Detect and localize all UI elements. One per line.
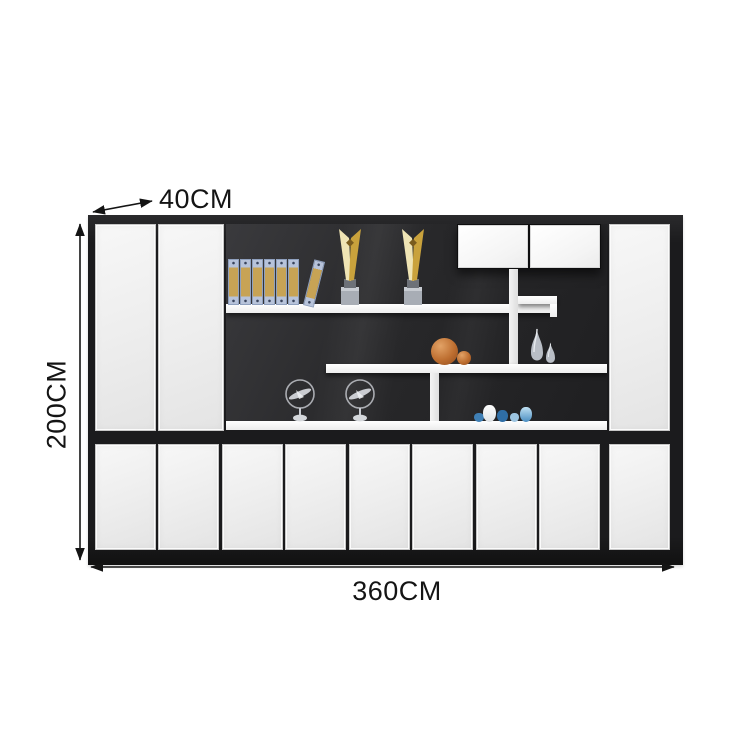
file-binders (228, 258, 315, 305)
ornament (483, 405, 496, 422)
upper-left-door-1 (95, 224, 156, 431)
bottom-door-2 (158, 444, 219, 550)
gold-trophy-1 (335, 229, 365, 305)
height-dimension-label: 200CM (42, 320, 73, 490)
silver-vase-tall (531, 327, 543, 365)
shelf-divider-post-upper (509, 269, 518, 366)
hanging-cabinet-door-right (530, 225, 600, 268)
spiky-ball-large (431, 338, 458, 365)
bottom-door-8 (539, 444, 600, 550)
cabinet (88, 215, 683, 565)
airplane-ring-icon (281, 376, 319, 422)
shelf-top (226, 304, 553, 313)
width-dimension-label: 360CM (337, 576, 457, 607)
bottom-door-4 (285, 444, 346, 550)
bottom-door-1 (95, 444, 156, 550)
trophy-icon (335, 229, 365, 305)
binder (264, 259, 275, 305)
airplane-model-2 (341, 376, 379, 422)
display-counter (226, 421, 607, 430)
trophy-icon (398, 229, 428, 305)
bottom-door-3 (222, 444, 283, 550)
product-diagram: 40CM 200CM 360CM (0, 0, 750, 750)
vase-icon (546, 342, 555, 365)
bottom-right-door (609, 444, 670, 550)
binder (228, 259, 239, 305)
binder (288, 259, 299, 305)
airplane-model-1 (281, 376, 319, 422)
gold-trophy-2 (398, 229, 428, 305)
shelf-step (518, 296, 557, 304)
ornament (497, 410, 508, 422)
display-area (226, 224, 607, 430)
hanging-cabinet-door-left (458, 225, 528, 268)
bottom-door-6 (412, 444, 473, 550)
binder (252, 259, 263, 305)
vase-icon (531, 327, 543, 365)
depth-arrow (93, 201, 152, 212)
spiky-ball-small (457, 351, 471, 365)
binder (276, 259, 287, 305)
upper-left-door-2 (158, 224, 224, 431)
depth-dimension-label: 40CM (159, 184, 233, 215)
upper-right-tall-door (609, 224, 670, 431)
shelf-step-lip (550, 304, 557, 317)
ornament (510, 413, 519, 422)
bottom-door-7 (476, 444, 537, 550)
bottom-door-5 (349, 444, 410, 550)
shelf-divider-post-lower (430, 373, 439, 423)
binder-leaning (303, 259, 325, 307)
hanging-cabinet (457, 224, 601, 269)
binder (240, 259, 251, 305)
shelf-middle (326, 364, 607, 373)
airplane-ring-icon (341, 376, 379, 422)
blue-ornaments (474, 405, 538, 422)
silver-vase-small (546, 342, 555, 365)
ornament (520, 407, 532, 422)
